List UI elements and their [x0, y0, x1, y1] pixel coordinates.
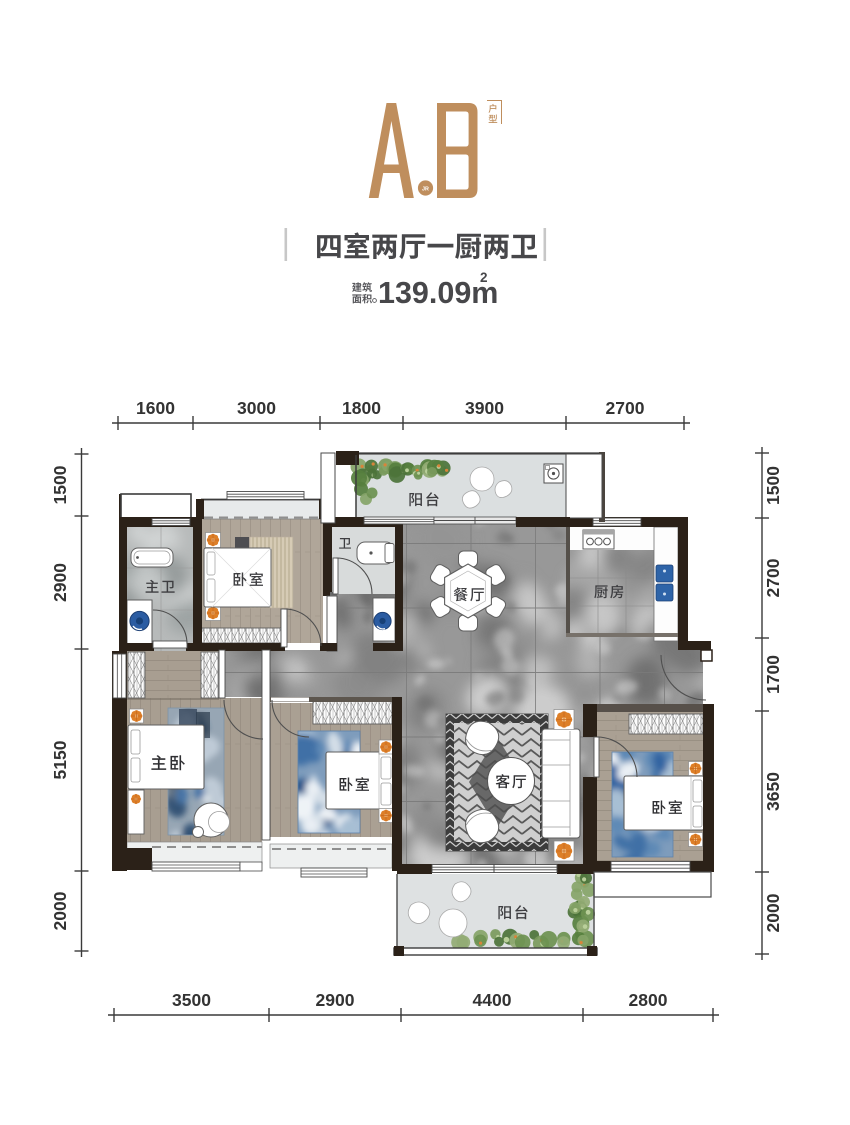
svg-text:2900: 2900 [316, 990, 355, 1010]
svg-text:3500: 3500 [172, 990, 211, 1010]
svg-text:3900: 3900 [465, 398, 504, 418]
svg-text:3000: 3000 [237, 398, 276, 418]
svg-text:2000: 2000 [763, 893, 783, 932]
svg-text:3650: 3650 [763, 772, 783, 811]
svg-text:1600: 1600 [136, 398, 175, 418]
svg-text:JR: JR [422, 186, 429, 192]
svg-text:1500: 1500 [50, 465, 70, 504]
svg-text:1500: 1500 [763, 466, 783, 505]
svg-text:2800: 2800 [629, 990, 668, 1010]
svg-text:2700: 2700 [606, 398, 645, 418]
svg-text:5150: 5150 [50, 740, 70, 779]
svg-text:2: 2 [480, 270, 488, 285]
svg-text:1800: 1800 [342, 398, 381, 418]
svg-text:2700: 2700 [763, 558, 783, 597]
svg-text:2000: 2000 [50, 891, 70, 930]
svg-text:1700: 1700 [763, 655, 783, 694]
svg-text:4400: 4400 [473, 990, 512, 1010]
svg-text:2900: 2900 [50, 563, 70, 602]
